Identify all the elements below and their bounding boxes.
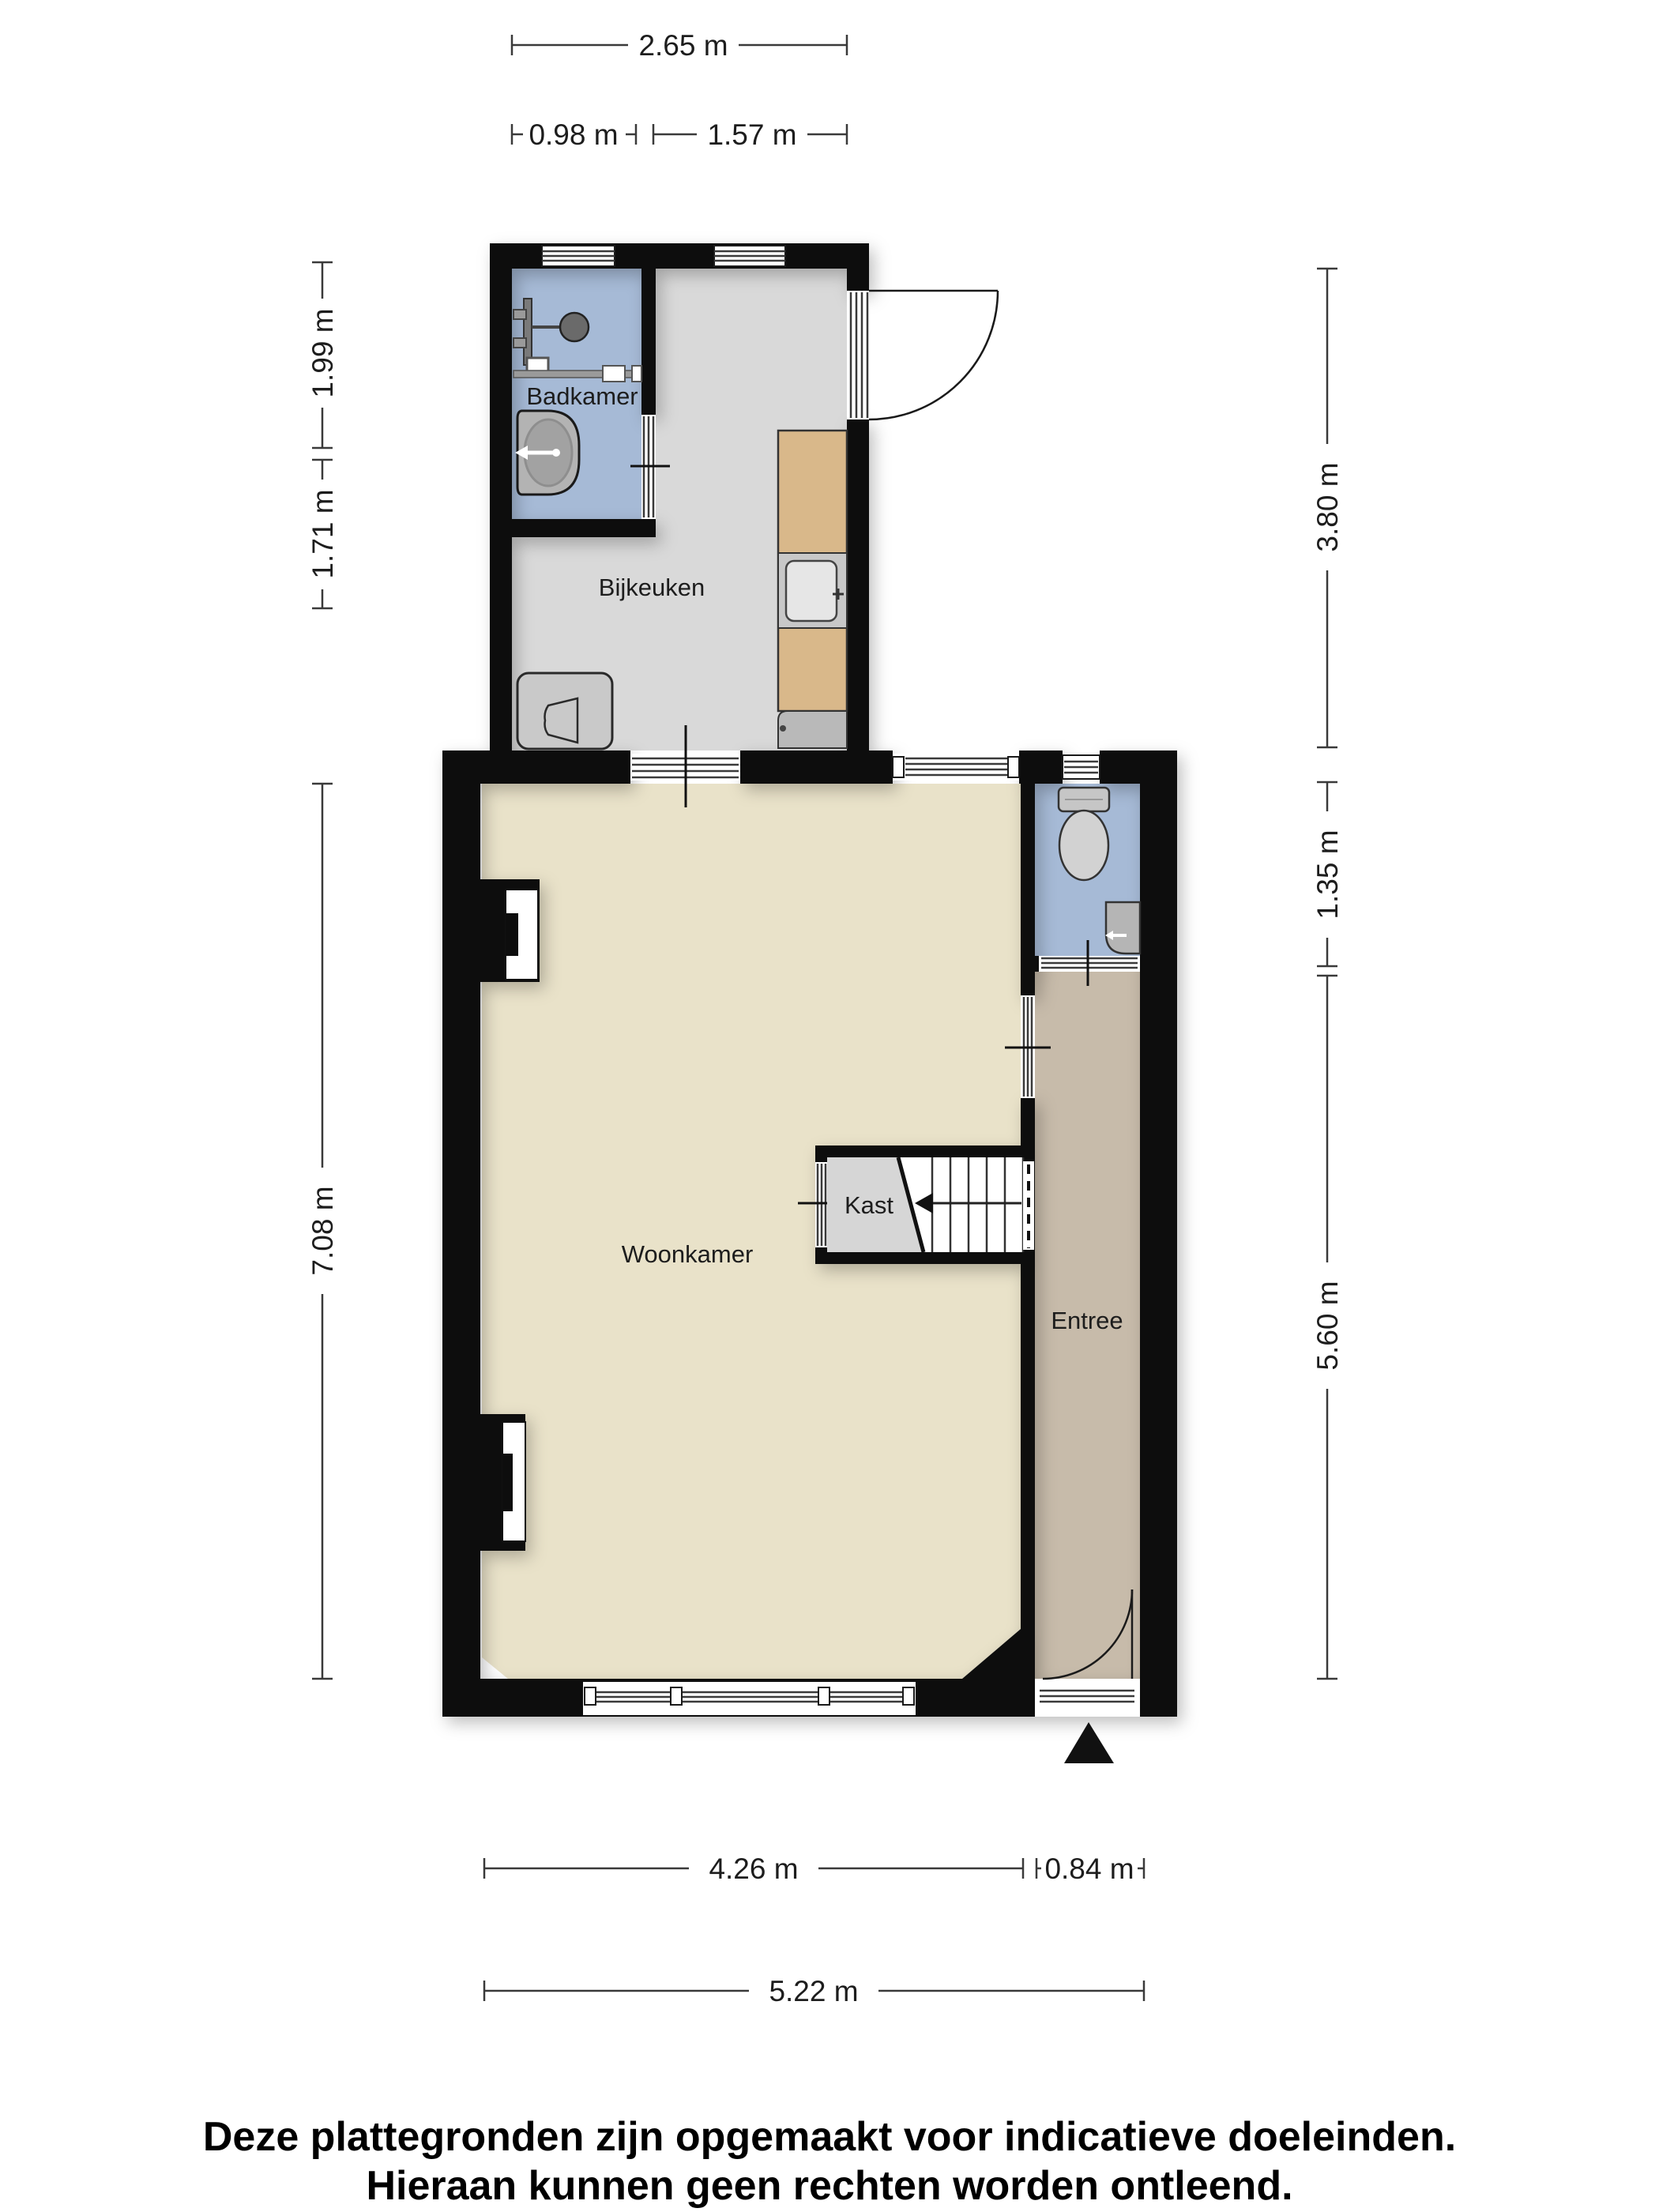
wall-toilet-left bbox=[1021, 750, 1035, 972]
room-label-woonkamer: Woonkamer bbox=[622, 1240, 754, 1268]
dim-label-right-upper: 3.80 m bbox=[1311, 462, 1344, 551]
dim-left-mid: 1.71 m bbox=[307, 460, 339, 608]
floorplan-drawing: Badkamer Bijkeuken Woonkamer Kast Entree… bbox=[0, 0, 1659, 2212]
dim-label-bottom-total: 5.22 m bbox=[769, 1975, 858, 2007]
wall-upper-left bbox=[490, 269, 512, 782]
dim-bottom-right: 0.84 m bbox=[1036, 1853, 1144, 1885]
wall-entree-b bbox=[1021, 1098, 1035, 1145]
wall-upper-right-a bbox=[847, 269, 869, 291]
bath-icon bbox=[515, 411, 579, 495]
wall-entree-a bbox=[1021, 972, 1035, 995]
dim-label-top-right: 1.57 m bbox=[707, 118, 796, 151]
wall-lower-right bbox=[1140, 750, 1177, 1717]
toilet-sink-icon bbox=[1105, 902, 1140, 954]
window-woonkamer-top-icon bbox=[893, 754, 1019, 781]
dim-label-top-left: 0.98 m bbox=[529, 118, 618, 151]
window-front-icon bbox=[583, 1682, 916, 1715]
counter-appliance-icon bbox=[778, 711, 847, 748]
dim-right-upper: 3.80 m bbox=[1311, 269, 1344, 747]
dim-right-lower: 5.60 m bbox=[1311, 976, 1344, 1679]
dim-label-right-mid: 1.35 m bbox=[1311, 829, 1344, 919]
wall-lower-left bbox=[442, 750, 480, 1717]
dim-label-right-lower: 5.60 m bbox=[1311, 1281, 1344, 1370]
disclaimer: Deze plattegronden zijn opgemaakt voor i… bbox=[203, 2114, 1456, 2209]
wall-entree-c bbox=[1021, 1264, 1035, 1629]
door-back-icon bbox=[847, 291, 998, 419]
dim-label-bottom-left: 4.26 m bbox=[709, 1853, 798, 1885]
disclaimer-line1: Deze plattegronden zijn opgemaakt voor i… bbox=[203, 2114, 1456, 2160]
dim-left-lower: 7.08 m bbox=[307, 784, 339, 1679]
dim-label-left-mid: 1.71 m bbox=[307, 489, 339, 578]
north-arrow-icon bbox=[1064, 1722, 1114, 1763]
dim-top-total: 2.65 m bbox=[512, 29, 847, 62]
window-back-left-icon bbox=[542, 246, 615, 266]
dim-label-left-lower: 7.08 m bbox=[307, 1186, 339, 1275]
washing-machine-icon bbox=[517, 673, 612, 749]
dim-bottom-total: 5.22 m bbox=[484, 1975, 1144, 2007]
kitchen-counter-icon bbox=[778, 431, 847, 711]
wall-lower-top-b bbox=[740, 750, 893, 784]
kitchen-sink-icon bbox=[786, 561, 837, 621]
wall-upper-right-b bbox=[847, 419, 869, 782]
wall-toilet-bottom-stub bbox=[1021, 956, 1039, 972]
wall-badkamer-bottom bbox=[512, 519, 656, 537]
room-label-kast: Kast bbox=[845, 1191, 893, 1219]
wall-badkamer-right bbox=[641, 269, 656, 415]
disclaimer-line2: Hieraan kunnen geen rechten worden ontle… bbox=[366, 2163, 1292, 2209]
room-label-entree: Entree bbox=[1051, 1307, 1123, 1334]
room-label-bijkeuken: Bijkeuken bbox=[599, 574, 705, 601]
dim-label-top-total: 2.65 m bbox=[638, 29, 728, 62]
dim-right-mid: 1.35 m bbox=[1311, 782, 1344, 966]
dim-bottom-left: 4.26 m bbox=[484, 1853, 1023, 1885]
room-label-badkamer: Badkamer bbox=[526, 382, 638, 410]
dim-label-bottom-right: 0.84 m bbox=[1044, 1853, 1134, 1885]
dim-top-left: 0.98 m bbox=[512, 118, 636, 151]
toilet-icon bbox=[1059, 788, 1109, 880]
window-back-right-icon bbox=[714, 246, 785, 266]
window-toilet-icon bbox=[1063, 755, 1100, 779]
dim-top-right: 1.57 m bbox=[653, 118, 847, 151]
dim-label-left-upper: 1.99 m bbox=[307, 308, 339, 397]
floorplan-page: Badkamer Bijkeuken Woonkamer Kast Entree… bbox=[0, 0, 1659, 2212]
dim-left-upper: 1.99 m bbox=[307, 262, 339, 448]
